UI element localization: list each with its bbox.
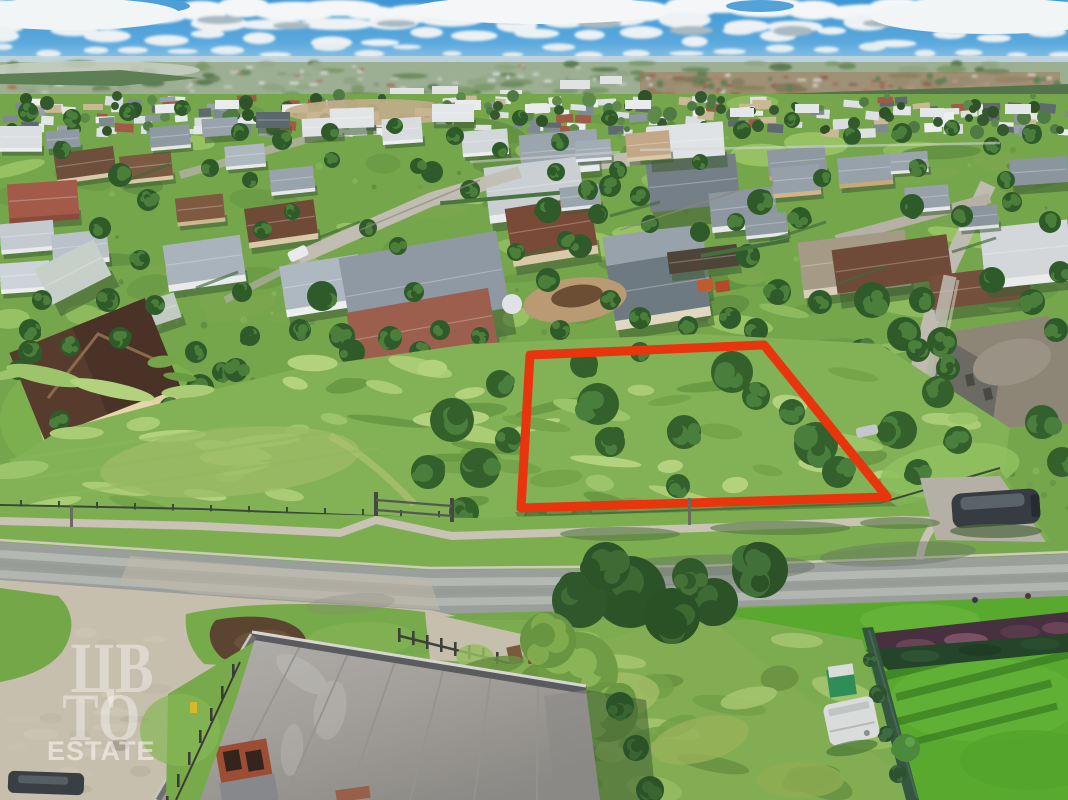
- svg-text:ESTATE: ESTATE: [47, 736, 156, 766]
